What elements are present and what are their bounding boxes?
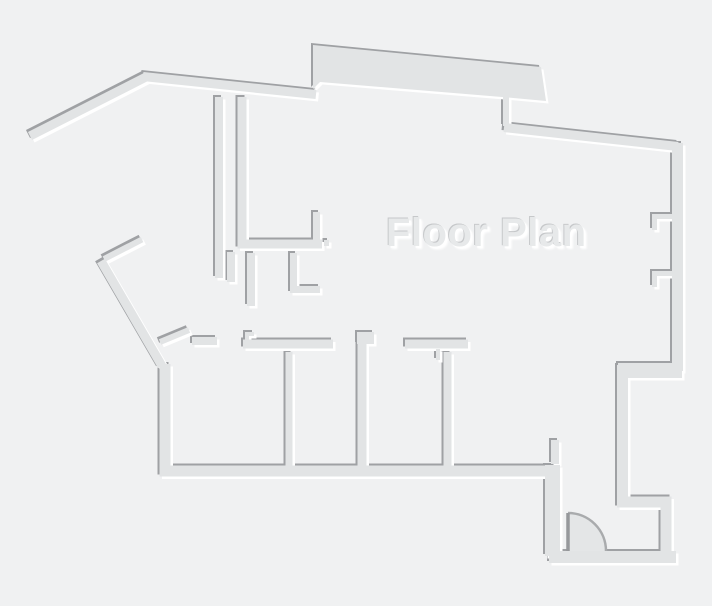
walls-layer	[28, 43, 685, 560]
door-swing-icon	[568, 513, 606, 551]
wall-fill-layer	[30, 45, 682, 557]
floor-plan-image	[0, 0, 712, 606]
floor-plan-canvas: Floor Plan	[0, 0, 712, 606]
floor-plan-title: Floor Plan	[386, 211, 587, 256]
